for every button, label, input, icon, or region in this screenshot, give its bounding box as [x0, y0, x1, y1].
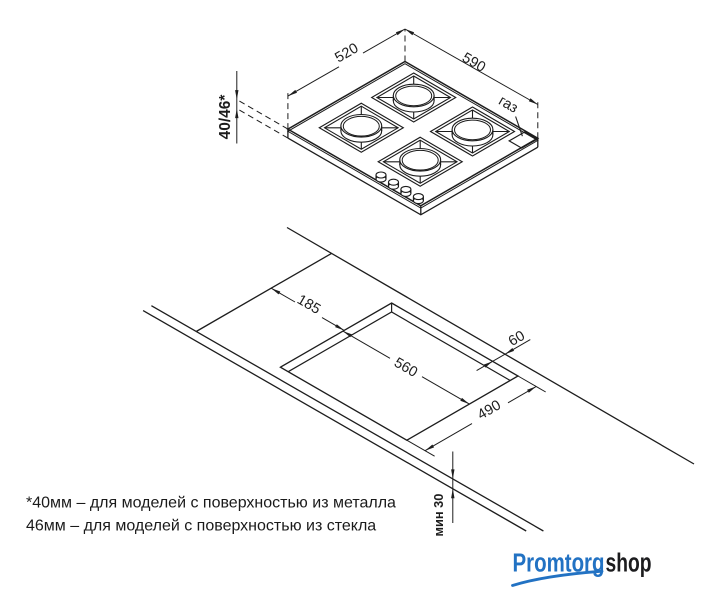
svg-text:60: 60 — [506, 328, 528, 350]
svg-text:40/46*: 40/46* — [217, 94, 234, 140]
svg-text:520: 520 — [332, 40, 361, 66]
svg-text:Promtorg: Promtorg — [513, 550, 605, 578]
svg-text:490: 490 — [475, 397, 504, 423]
svg-text:46мм – для моделей с поверхнос: 46мм – для моделей с поверхностью из сте… — [26, 518, 376, 535]
svg-text:мин 30: мин 30 — [431, 494, 446, 537]
svg-text:газ: газ — [496, 93, 521, 117]
svg-text:590: 590 — [459, 50, 488, 76]
svg-text:*40мм – для моделей с поверхно: *40мм – для моделей с поверхностью из ме… — [26, 495, 396, 512]
svg-text:185: 185 — [294, 292, 323, 318]
svg-text:shop: shop — [606, 550, 652, 578]
svg-text:560: 560 — [391, 355, 420, 381]
